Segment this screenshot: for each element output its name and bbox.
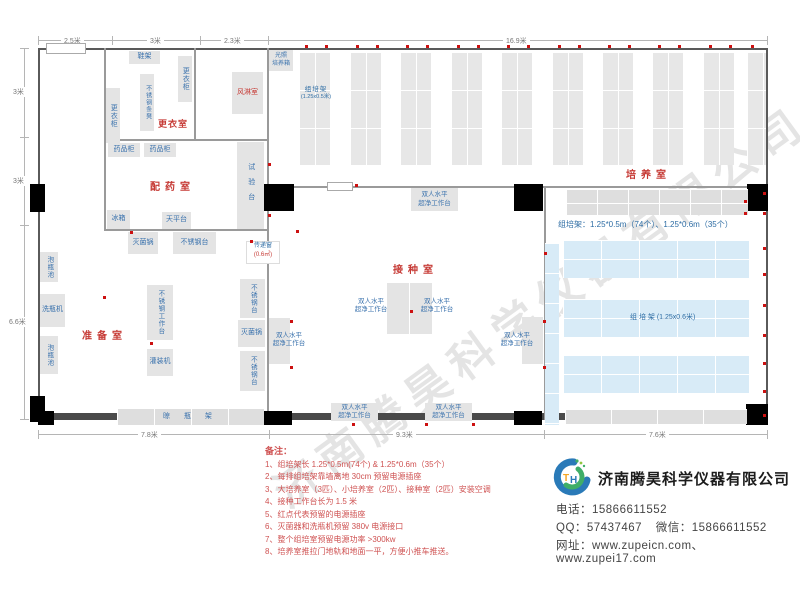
dim-label-left-1: 3米 bbox=[10, 87, 27, 97]
equipment-clean-bench: 双人水平超净工作台 bbox=[425, 403, 472, 421]
culture-rack-column bbox=[703, 52, 734, 165]
dim-label-left-3: 6.6米 bbox=[6, 317, 29, 327]
clean-bench-label: 双人水平超净工作台 bbox=[420, 298, 454, 314]
wall bbox=[194, 48, 196, 140]
power-outlet-dot bbox=[744, 200, 747, 203]
label-line: 培养箱 bbox=[272, 61, 290, 67]
equipment-steel-table: 不锈钢台 bbox=[240, 279, 265, 318]
tissue-rack-label: 组 培 架 (1.25x0.6米) bbox=[630, 312, 695, 322]
power-outlet-dot bbox=[290, 366, 293, 369]
culture-rack-column bbox=[400, 52, 431, 165]
power-outlet-dot bbox=[608, 45, 611, 48]
equipment-label: 灭菌锅 bbox=[241, 329, 262, 337]
power-outlet-dot bbox=[425, 423, 428, 426]
dim-tick bbox=[20, 137, 29, 138]
equipment-label: 泡瓶池 bbox=[45, 256, 53, 279]
dim-label-left-2: 3米 bbox=[10, 176, 27, 186]
label-line: 双人水平 bbox=[358, 298, 384, 305]
equipment-label: 洗瓶机 bbox=[42, 306, 63, 314]
equipment-medicine-cabinet: 药品柜 bbox=[108, 143, 140, 157]
equipment-label: 不锈钢工作台 bbox=[156, 290, 164, 335]
power-outlet-dot bbox=[709, 45, 712, 48]
equipment-steel-table: 不锈钢台 bbox=[240, 351, 265, 391]
dim-label-bottom-1: 7.8米 bbox=[138, 430, 161, 440]
door-opening bbox=[262, 411, 292, 425]
room-label-inoculation-room: 接种室 bbox=[393, 261, 438, 276]
room-air-shower: 风淋室 bbox=[232, 72, 263, 114]
sliding-door bbox=[46, 43, 86, 54]
dim-tick bbox=[269, 430, 270, 439]
dim-label-top-3: 2.3米 bbox=[221, 36, 244, 46]
power-outlet-dot bbox=[296, 230, 299, 233]
note-line: 7、整个组培室预留电源功率 >300kw bbox=[265, 534, 545, 547]
pass-window-label: 传递窗 bbox=[247, 242, 279, 251]
label-line: 双人水平 bbox=[276, 332, 302, 339]
rack-size: (1.25x0.5米) bbox=[296, 94, 336, 101]
culture-rack-horizontal bbox=[565, 409, 747, 424]
power-outlet-dot bbox=[763, 414, 766, 417]
wall bbox=[267, 48, 269, 420]
clean-bench-label: 双人水平超净工作台 bbox=[498, 332, 536, 348]
equipment-fridge: 冰箱 bbox=[107, 210, 130, 229]
room-label-prep-room: 准备室 bbox=[82, 327, 127, 342]
door-opening bbox=[747, 184, 768, 211]
sliding-door bbox=[327, 182, 353, 191]
power-outlet-dot bbox=[751, 45, 754, 48]
power-outlet-dot bbox=[103, 296, 106, 299]
phone-label: 电话： bbox=[556, 504, 592, 516]
company-name: 济南腾昊科学仪器有限公司 bbox=[598, 468, 790, 489]
equipment-label: 鞋架 bbox=[138, 53, 152, 61]
dim-tick bbox=[767, 36, 768, 45]
equipment-label: 不锈钢条凳 bbox=[143, 85, 150, 120]
equipment-clean-bench: 双人水平超净工作台 bbox=[331, 403, 378, 421]
rack-size-label: 组培架 (1.25x0.5米) bbox=[296, 86, 336, 102]
company-phone-line: 电话：15866611552 bbox=[556, 501, 667, 517]
power-outlet-dot bbox=[356, 45, 359, 48]
power-outlet-dot bbox=[268, 163, 271, 166]
power-outlet-dot bbox=[678, 45, 681, 48]
power-outlet-dot bbox=[305, 45, 308, 48]
website-2: www.zupei17.com bbox=[556, 553, 656, 565]
culture-rack-column bbox=[602, 52, 633, 165]
tissue-rack-row bbox=[563, 240, 749, 278]
equipment-soaking-pool: 泡瓶池 bbox=[40, 336, 58, 374]
power-outlet-dot bbox=[763, 192, 766, 195]
culture-rack-column bbox=[747, 52, 766, 165]
power-outlet-dot bbox=[426, 45, 429, 48]
equipment-label: 泡瓶池 bbox=[45, 344, 53, 367]
power-outlet-dot bbox=[268, 214, 271, 217]
power-outlet-dot bbox=[763, 362, 766, 365]
equipment-steel-table: 不锈钢台 bbox=[173, 232, 216, 254]
power-outlet-dot bbox=[543, 320, 546, 323]
power-outlet-dot bbox=[763, 304, 766, 307]
power-outlet-dot bbox=[406, 45, 409, 48]
equipment-label: 冰箱 bbox=[112, 215, 126, 223]
label-line: 超净工作台 bbox=[421, 306, 454, 313]
label-line: 超净工作台 bbox=[355, 306, 388, 313]
power-outlet-dot bbox=[250, 240, 253, 243]
dim-tick bbox=[20, 225, 29, 226]
svg-text:T: T bbox=[563, 473, 569, 484]
dim-tick bbox=[20, 48, 29, 49]
door-opening bbox=[514, 411, 542, 425]
power-outlet-dot bbox=[543, 366, 546, 369]
label-line: 超净工作台 bbox=[273, 340, 306, 347]
wechat-value: 15866611552 bbox=[692, 522, 767, 534]
equipment-filling-machine: 灌装机 bbox=[147, 349, 173, 376]
equipment-label: 双人水平超净工作台 bbox=[338, 404, 371, 420]
dim-tick bbox=[544, 430, 545, 439]
dim-label-bottom-3: 7.6米 bbox=[646, 430, 669, 440]
power-outlet-dot bbox=[150, 342, 153, 345]
equipment-label: 不锈钢台 bbox=[249, 356, 257, 386]
dim-tick bbox=[767, 430, 768, 439]
power-outlet-dot bbox=[763, 334, 766, 337]
door-opening bbox=[30, 184, 45, 212]
dim-line-left bbox=[24, 48, 25, 420]
power-outlet-dot bbox=[376, 45, 379, 48]
room-label-changing-room: 更衣室 bbox=[158, 117, 188, 130]
wall bbox=[104, 229, 269, 231]
equipment-label: 天平台 bbox=[166, 216, 187, 224]
equipment-shoe-rack: 鞋架 bbox=[129, 51, 160, 64]
equipment-label: 晾 瓶 架 bbox=[163, 413, 218, 421]
label-line: 超净工作台 bbox=[432, 412, 465, 419]
note-line: 5、红点代表预留的电源插座 bbox=[265, 509, 545, 522]
equipment-soaking-pool: 泡瓶池 bbox=[40, 252, 58, 282]
clean-bench-label: 双人水平超净工作台 bbox=[270, 332, 308, 348]
culture-rack-column bbox=[652, 52, 683, 165]
pass-window: 传递窗 (0.6㎡) bbox=[246, 241, 280, 264]
company-qq-wechat-line: QQ：57437467 微信：15866611552 bbox=[556, 519, 767, 535]
power-outlet-dot bbox=[729, 45, 732, 48]
note-line: 3、大培养室（3匹）、小培养室（2匹）、接种室（2匹）安装空调 bbox=[265, 484, 545, 497]
equipment-clean-bench bbox=[387, 283, 409, 334]
notes-title: 备注： bbox=[265, 445, 545, 458]
equipment-label: 更衣柜 bbox=[109, 104, 117, 128]
power-outlet-dot bbox=[578, 45, 581, 48]
dim-label-bottom-2: 9.3米 bbox=[393, 430, 416, 440]
equipment-label: 灌装机 bbox=[150, 358, 171, 366]
power-outlet-dot bbox=[130, 231, 133, 234]
web-separator: 、 bbox=[692, 540, 704, 552]
dim-tick bbox=[200, 36, 201, 45]
equipment-steel-worktable: 不锈钢工作台 bbox=[147, 285, 173, 340]
notes-block: 备注： 1、组培架长 1.25*0.5m(74个) & 1.25*0.6m（35… bbox=[265, 445, 545, 559]
equipment-steel-bench: 不锈钢条凳 bbox=[140, 74, 154, 131]
equipment-label: 更衣柜 bbox=[181, 67, 189, 91]
power-outlet-dot bbox=[527, 45, 530, 48]
power-outlet-dot bbox=[410, 310, 413, 313]
power-outlet-dot bbox=[355, 184, 358, 187]
note-line: 4、接种工作台长为 1.5 米 bbox=[265, 496, 545, 509]
label-line: 超净工作台 bbox=[338, 412, 371, 419]
dim-tick bbox=[38, 430, 39, 439]
floor-plan-page: 济南腾昊科学仪器有限公司 2.5米 3米 2.3米 16.9米 3米 3米 6.… bbox=[0, 0, 800, 600]
tissue-rack-row bbox=[563, 355, 749, 393]
company-logo-icon: T H bbox=[550, 456, 594, 500]
label-line: 双人水平 bbox=[504, 332, 530, 339]
door-opening bbox=[38, 411, 54, 425]
qq-label: QQ： bbox=[556, 522, 587, 534]
website-1: www.zupeicn.com bbox=[592, 540, 692, 552]
power-outlet-dot bbox=[763, 273, 766, 276]
qq-value: 57437467 bbox=[587, 522, 642, 534]
door-opening bbox=[260, 184, 294, 211]
equipment-label: 光照培养箱 bbox=[272, 53, 290, 67]
label-line: 超净工作台 bbox=[418, 200, 451, 207]
equipment-light-incubator: 光照培养箱 bbox=[269, 50, 293, 71]
pass-window-size: (0.6㎡) bbox=[247, 251, 279, 260]
dim-tick bbox=[38, 36, 39, 45]
equipment-medicine-cabinet: 药品柜 bbox=[144, 143, 176, 157]
phone-value: 15866611552 bbox=[592, 504, 667, 516]
dim-tick bbox=[112, 36, 113, 45]
svg-text:H: H bbox=[570, 475, 577, 486]
equipment-label: 试验台 bbox=[246, 163, 254, 208]
room-label-culture-room: 培养室 bbox=[626, 166, 671, 181]
culture-rack-column bbox=[501, 52, 532, 165]
clean-bench-label: 双人水平超净工作台 bbox=[354, 298, 388, 314]
equipment-label: 不锈钢台 bbox=[181, 239, 209, 247]
power-outlet-dot bbox=[544, 252, 547, 255]
power-outlet-dot bbox=[744, 212, 747, 215]
power-outlet-dot bbox=[763, 212, 766, 215]
equipment-label: 不锈钢台 bbox=[249, 284, 257, 314]
company-web-line: 网址：www.zupeicn.com、www.zupei17.com bbox=[556, 537, 800, 565]
power-outlet-dot bbox=[290, 320, 293, 323]
culture-rack-horizontal bbox=[566, 189, 748, 215]
equipment-label: 药品柜 bbox=[150, 146, 171, 154]
dim-tick bbox=[268, 36, 269, 45]
equipment-label: 双人水平超净工作台 bbox=[418, 191, 451, 207]
note-line: 6、灭菌器和洗瓶机预留 380v 电源接口 bbox=[265, 521, 545, 534]
wechat-label: 微信： bbox=[656, 522, 692, 534]
room-label-air-shower: 风淋室 bbox=[237, 89, 258, 97]
note-line: 2、每排组培架靠墙离地 30cm 预留电源插座 bbox=[265, 471, 545, 484]
equipment-sterilizer: 灭菌锅 bbox=[128, 232, 158, 254]
equipment-locker: 更衣柜 bbox=[106, 88, 120, 143]
note-line: 1、组培架长 1.25*0.5m(74个) & 1.25*0.6m（35个） bbox=[265, 459, 545, 472]
power-outlet-dot bbox=[558, 45, 561, 48]
culture-rack-column bbox=[350, 52, 381, 165]
equipment-sterilizer: 灭菌锅 bbox=[238, 320, 265, 347]
label-line: 光照 bbox=[275, 53, 287, 59]
power-outlet-dot bbox=[325, 45, 328, 48]
web-label: 网址： bbox=[556, 540, 592, 552]
power-outlet-dot bbox=[507, 45, 510, 48]
door-opening bbox=[514, 184, 543, 211]
equipment-clean-bench: 双人水平超净工作台 bbox=[411, 188, 458, 211]
equipment-label: 双人水平超净工作台 bbox=[432, 404, 465, 420]
equipment-bottle-washer: 洗瓶机 bbox=[40, 294, 65, 327]
equipment-label: 药品柜 bbox=[114, 146, 135, 154]
wall bbox=[104, 139, 269, 141]
power-outlet-dot bbox=[477, 45, 480, 48]
label-line: 超净工作台 bbox=[501, 340, 534, 347]
equipment-test-bench: 试验台 bbox=[237, 142, 264, 229]
power-outlet-dot bbox=[472, 423, 475, 426]
power-outlet-dot bbox=[628, 45, 631, 48]
equipment-balance-table: 天平台 bbox=[162, 212, 191, 229]
equipment-drying-rack: 晾 瓶 架 bbox=[117, 409, 264, 425]
note-line: 8、培养室推拉门地轨和地面一平，方便小推车推送。 bbox=[265, 546, 545, 559]
culture-rack-column bbox=[299, 52, 330, 165]
tissue-rack-column bbox=[545, 243, 559, 425]
culture-rack-column bbox=[552, 52, 583, 165]
room-label-dispensing-room: 配药室 bbox=[150, 178, 195, 193]
equipment-label: 灭菌锅 bbox=[133, 239, 154, 247]
rack-summary-text: 组培架：1.25*0.5m（74个）、1.25*0.6m（35个） bbox=[558, 219, 763, 230]
culture-rack-column bbox=[451, 52, 482, 165]
label-line: 双人水平 bbox=[436, 404, 462, 411]
label-line: 双人水平 bbox=[422, 191, 448, 198]
dim-tick bbox=[20, 419, 29, 420]
power-outlet-dot bbox=[763, 390, 766, 393]
equipment-locker: 更衣柜 bbox=[178, 56, 192, 102]
power-outlet-dot bbox=[457, 45, 460, 48]
power-outlet-dot bbox=[352, 423, 355, 426]
label-line: 双人水平 bbox=[342, 404, 368, 411]
power-outlet-dot bbox=[658, 45, 661, 48]
power-outlet-dot bbox=[763, 247, 766, 250]
label-line: 双人水平 bbox=[424, 298, 450, 305]
dim-label-top-2: 3米 bbox=[147, 36, 164, 46]
